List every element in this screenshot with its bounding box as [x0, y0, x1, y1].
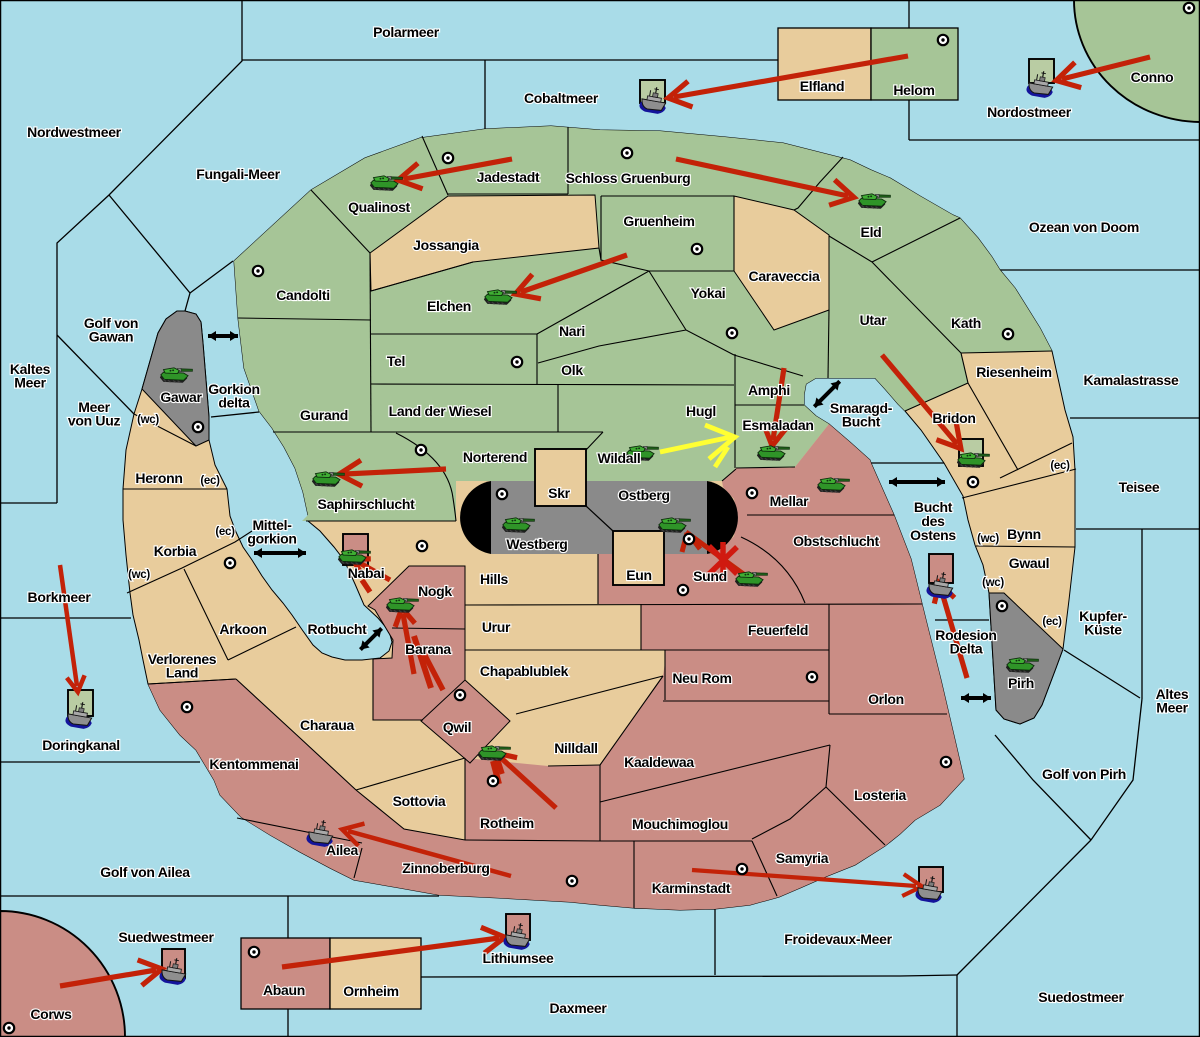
svg-text:Corws: Corws: [30, 1006, 72, 1022]
svg-text:Suedwestmeer: Suedwestmeer: [118, 929, 214, 945]
svg-text:Mouchimoglou: Mouchimoglou: [632, 816, 728, 832]
svg-text:Gawar: Gawar: [160, 389, 202, 405]
svg-text:Froidevaux-Meer: Froidevaux-Meer: [784, 931, 892, 947]
svg-text:Samyria: Samyria: [776, 850, 829, 866]
svg-text:Meer: Meer: [14, 375, 46, 391]
svg-text:Abaun: Abaun: [263, 982, 305, 998]
svg-text:Amphi: Amphi: [748, 382, 790, 398]
svg-text:Land: Land: [166, 665, 198, 681]
svg-text:Kamalastrasse: Kamalastrasse: [1084, 372, 1179, 388]
svg-text:Rotbucht: Rotbucht: [307, 621, 367, 637]
svg-text:Golf von Pirh: Golf von Pirh: [1042, 766, 1126, 782]
svg-text:Meer: Meer: [1156, 700, 1188, 716]
svg-text:Nari: Nari: [559, 323, 585, 339]
svg-text:(ec): (ec): [1042, 616, 1062, 628]
svg-text:Orlon: Orlon: [868, 691, 904, 707]
svg-text:Gurand: Gurand: [300, 407, 348, 423]
svg-text:Nabai: Nabai: [348, 565, 385, 581]
svg-text:Fungali-Meer: Fungali-Meer: [196, 166, 280, 182]
svg-text:Jossangia: Jossangia: [413, 237, 479, 253]
svg-text:Nordwestmeer: Nordwestmeer: [27, 124, 122, 140]
svg-text:Elchen: Elchen: [427, 298, 471, 314]
svg-text:(wc): (wc): [128, 569, 150, 581]
svg-text:Arkoon: Arkoon: [219, 621, 266, 637]
svg-text:Nogk: Nogk: [418, 583, 452, 599]
svg-text:Borkmeer: Borkmeer: [28, 589, 92, 605]
svg-text:Lithiumsee: Lithiumsee: [483, 950, 554, 966]
svg-text:Olk: Olk: [561, 362, 583, 378]
svg-text:Ornheim: Ornheim: [343, 983, 398, 999]
svg-text:Ostens: Ostens: [910, 527, 956, 543]
svg-text:Gwaul: Gwaul: [1009, 555, 1050, 571]
svg-text:Candolti: Candolti: [276, 287, 330, 303]
svg-text:Qualinost: Qualinost: [348, 199, 410, 215]
svg-text:(ec): (ec): [200, 475, 220, 487]
svg-text:Conno: Conno: [1131, 69, 1174, 85]
svg-text:Ostberg: Ostberg: [618, 487, 670, 503]
svg-text:Eun: Eun: [626, 567, 652, 583]
svg-text:(ec): (ec): [1050, 460, 1070, 472]
svg-text:Charaua: Charaua: [300, 717, 354, 733]
svg-text:Bucht: Bucht: [842, 414, 881, 430]
svg-text:Ailea: Ailea: [326, 842, 358, 858]
svg-text:delta: delta: [218, 395, 250, 411]
svg-text:Land der Wiesel: Land der Wiesel: [389, 403, 492, 419]
svg-text:Kaaldewaa: Kaaldewaa: [624, 754, 694, 770]
svg-text:Elfland: Elfland: [800, 78, 845, 94]
svg-text:Korbia: Korbia: [154, 543, 197, 559]
svg-text:Bridon: Bridon: [932, 410, 975, 426]
svg-text:Utar: Utar: [860, 312, 888, 328]
svg-text:Jadestadt: Jadestadt: [477, 169, 540, 185]
svg-text:Daxmeer: Daxmeer: [549, 1000, 607, 1016]
svg-text:Yokai: Yokai: [691, 285, 726, 301]
svg-text:Karminstadt: Karminstadt: [652, 880, 731, 896]
svg-text:Pirh: Pirh: [1008, 675, 1034, 691]
svg-text:Nilldall: Nilldall: [554, 740, 598, 756]
svg-text:Esmaladan: Esmaladan: [742, 417, 813, 433]
svg-text:(wc): (wc): [982, 577, 1004, 589]
svg-text:Riesenheim: Riesenheim: [976, 364, 1052, 380]
svg-text:Mellar: Mellar: [770, 493, 810, 509]
svg-text:Heronn: Heronn: [135, 470, 182, 486]
svg-text:Neu Rom: Neu Rom: [672, 670, 731, 686]
svg-text:Kentommenai: Kentommenai: [209, 756, 298, 772]
svg-text:Urur: Urur: [482, 619, 511, 635]
svg-text:Helom: Helom: [893, 82, 934, 98]
svg-text:Barana: Barana: [405, 641, 451, 657]
svg-text:Polarmeer: Polarmeer: [373, 24, 440, 40]
svg-text:Rotheim: Rotheim: [480, 815, 534, 831]
svg-text:gorkion: gorkion: [247, 531, 296, 547]
svg-text:Golf von Ailea: Golf von Ailea: [100, 864, 190, 880]
svg-text:Kath: Kath: [951, 315, 981, 331]
svg-text:Saphirschlucht: Saphirschlucht: [318, 496, 416, 512]
svg-text:Losteria: Losteria: [854, 787, 907, 803]
svg-text:Feuerfeld: Feuerfeld: [748, 622, 808, 638]
svg-text:Nordostmeer: Nordostmeer: [987, 104, 1072, 120]
svg-text:Küste: Küste: [1084, 622, 1122, 638]
svg-text:Schloss Gruenburg: Schloss Gruenburg: [566, 170, 691, 186]
svg-text:Gawan: Gawan: [89, 329, 133, 345]
svg-text:von Uuz: von Uuz: [68, 413, 121, 429]
svg-text:Caraveccia: Caraveccia: [749, 268, 820, 284]
svg-text:(wc): (wc): [137, 414, 159, 426]
svg-text:Suedostmeer: Suedostmeer: [1038, 989, 1124, 1005]
svg-text:(wc): (wc): [977, 533, 999, 545]
svg-text:Eld: Eld: [861, 224, 882, 240]
svg-text:Qwil: Qwil: [443, 719, 471, 735]
svg-text:Zinnoberburg: Zinnoberburg: [402, 860, 489, 876]
svg-text:Gruenheim: Gruenheim: [623, 213, 694, 229]
svg-text:Chapablublek: Chapablublek: [480, 663, 569, 679]
svg-text:Hills: Hills: [480, 571, 509, 587]
svg-text:Hugl: Hugl: [686, 403, 716, 419]
svg-text:Sottovia: Sottovia: [393, 793, 446, 809]
svg-text:Wildall: Wildall: [598, 450, 641, 466]
svg-text:Norterend: Norterend: [463, 449, 527, 465]
svg-text:Teisee: Teisee: [1119, 479, 1160, 495]
svg-text:Westberg: Westberg: [506, 536, 567, 552]
svg-text:Ozean von Doom: Ozean von Doom: [1029, 219, 1139, 235]
svg-text:Cobaltmeer: Cobaltmeer: [524, 90, 599, 106]
svg-text:Skr: Skr: [548, 485, 571, 501]
svg-text:(ec): (ec): [215, 526, 235, 538]
svg-text:Obstschlucht: Obstschlucht: [793, 533, 879, 549]
svg-text:Bynn: Bynn: [1007, 526, 1041, 542]
svg-text:Doringkanal: Doringkanal: [42, 737, 120, 753]
svg-text:Tel: Tel: [387, 353, 405, 369]
svg-text:Delta: Delta: [950, 641, 983, 657]
svg-text:Sund: Sund: [693, 568, 727, 584]
